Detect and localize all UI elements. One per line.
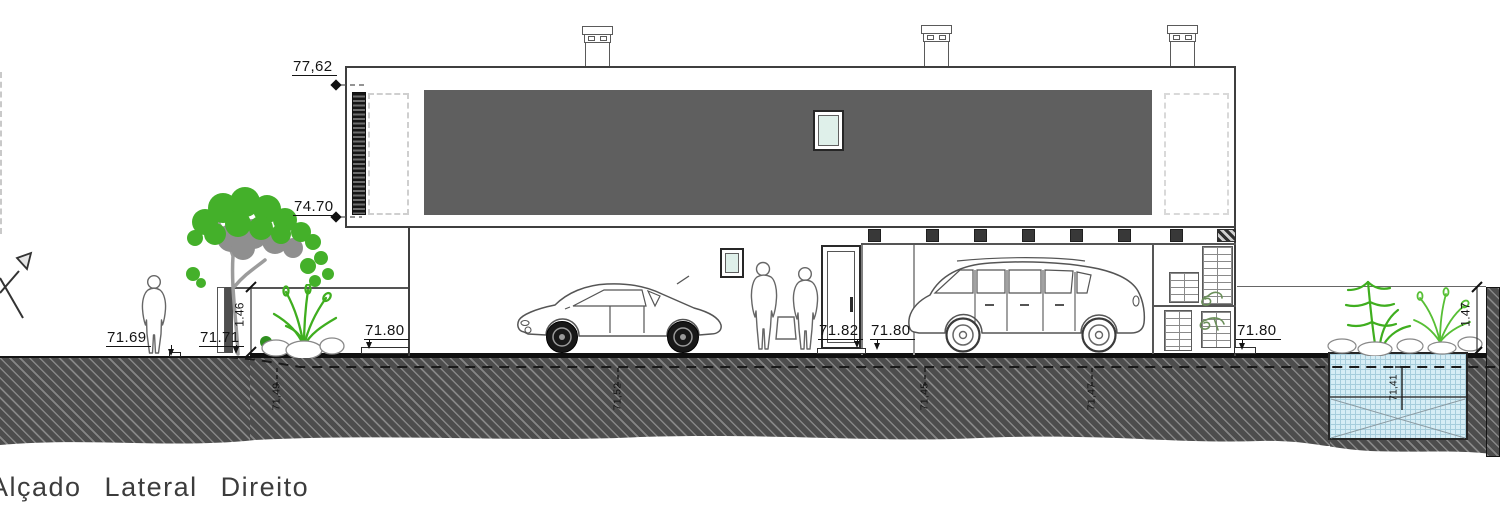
arrow-pavement-right bbox=[1242, 339, 1243, 343]
original-grade-dashed-line bbox=[228, 357, 1500, 367]
arrow-door-threshold bbox=[857, 339, 858, 341]
label-pavement-right: 71.80 bbox=[1236, 323, 1281, 340]
label-slab-level: 74.70 bbox=[293, 199, 338, 216]
linework-overlay bbox=[0, 0, 1500, 507]
label-roof-level: 77,62 bbox=[292, 59, 337, 76]
arrow-ground-left bbox=[171, 345, 172, 349]
label-terrain-2: 71,52 bbox=[613, 377, 624, 417]
elevation-drawing: 77,62 74.70 71.69 71.71 1.46 71.80 71.82… bbox=[0, 0, 1500, 507]
arrow-carport-level bbox=[877, 339, 878, 343]
label-carport-level: 71.80 bbox=[870, 323, 915, 340]
label-terrain-3: 71,45 bbox=[920, 377, 931, 417]
arrow-pavement-left bbox=[369, 339, 370, 342]
arrow-gate-base bbox=[236, 345, 237, 347]
drawing-title: Alçado Lateral Direito bbox=[0, 472, 309, 503]
label-terrain-4: 71,47 bbox=[1087, 377, 1098, 417]
label-terrain-1: 71,49 bbox=[272, 377, 283, 417]
label-gate-height: 1.46 bbox=[235, 295, 246, 335]
label-pavement-left: 71.80 bbox=[364, 323, 409, 340]
label-ground-left: 71.69 bbox=[106, 330, 151, 347]
label-tank-bottom: 71,41 bbox=[1389, 368, 1400, 408]
label-wall-height: 1.47 bbox=[1461, 295, 1472, 335]
label-door-threshold: 71.82 bbox=[818, 323, 863, 340]
